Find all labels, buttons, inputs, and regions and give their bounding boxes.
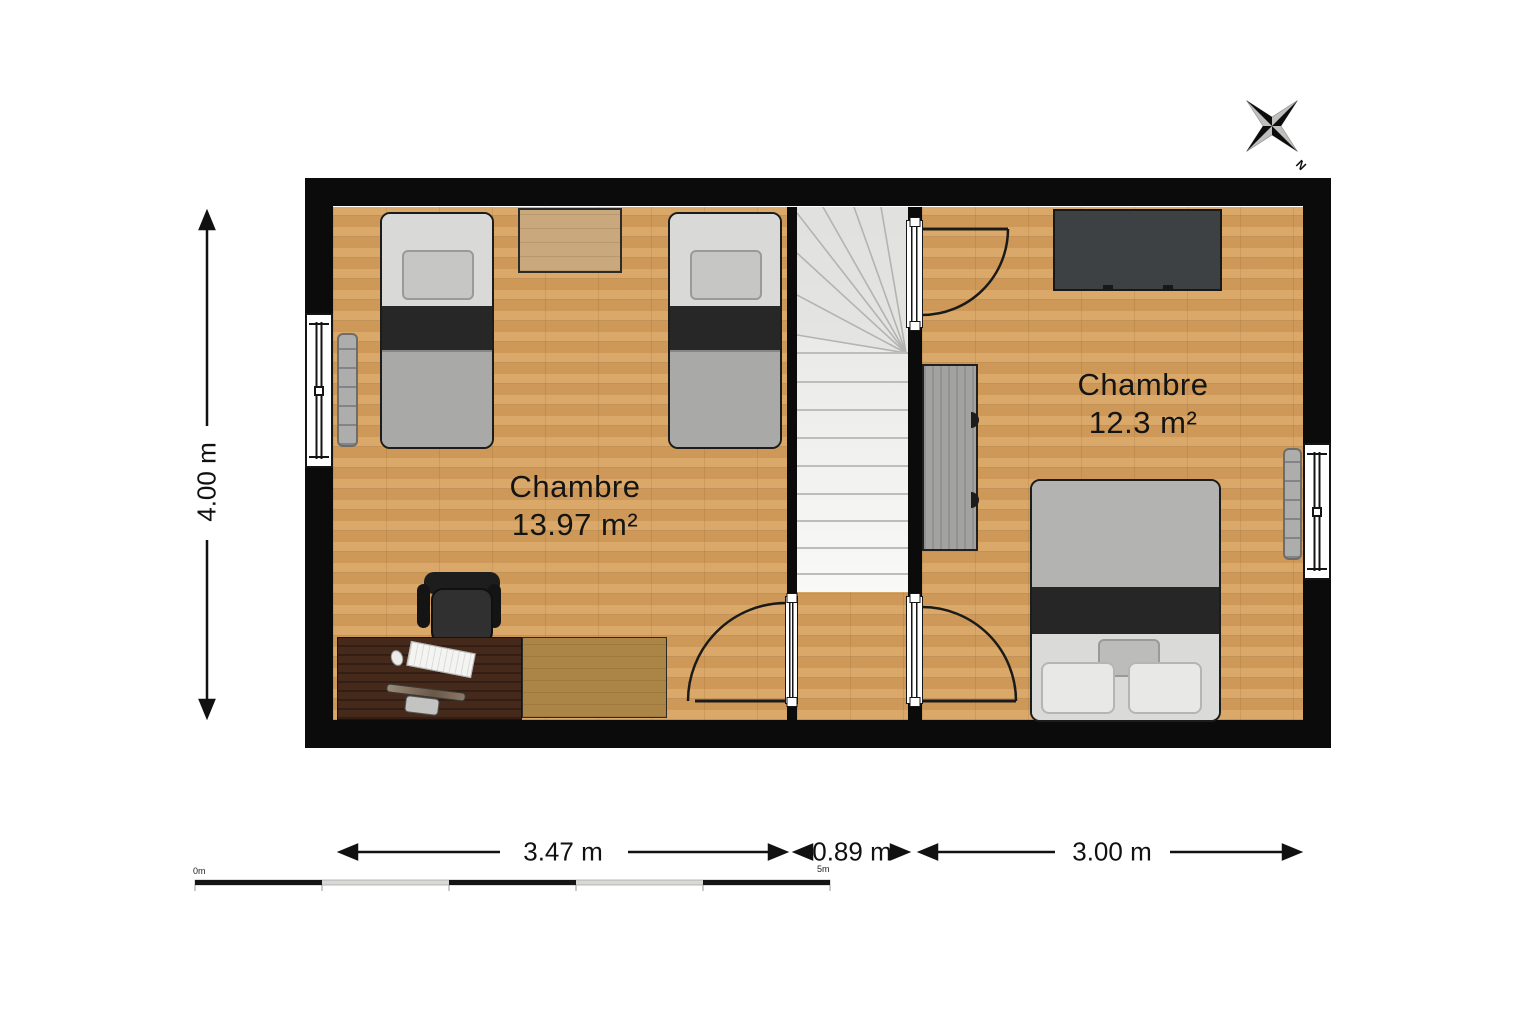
single-bed-1: [380, 212, 494, 449]
room-label-left: Chambre 13.97 m²: [450, 468, 700, 544]
window-left: [305, 313, 333, 468]
room-name: Chambre: [450, 468, 700, 506]
dimension-room-right-width: 3.00 m: [1072, 837, 1152, 868]
scale-start-label: 0m: [193, 866, 206, 876]
window-handle: [1312, 507, 1322, 517]
window-cap: [1307, 568, 1327, 570]
bed-band: [1032, 587, 1219, 634]
window-cap: [309, 456, 329, 458]
bed-blanket: [670, 350, 780, 447]
side-table: [518, 208, 622, 273]
dimension-room-left-width: 3.47 m: [523, 837, 603, 868]
single-bed-2: [668, 212, 782, 449]
doorframe-left-room: [785, 596, 798, 704]
office-chair-arm-left: [417, 584, 430, 628]
doorframe-cap: [909, 217, 920, 227]
scale-end-label: 5m: [817, 864, 830, 874]
wardrobe-handle: [1163, 285, 1173, 290]
scale-bar: [195, 880, 830, 891]
room-area: 12.3 m²: [1018, 404, 1268, 442]
doorframe-cap: [909, 697, 920, 707]
dresser-knob: [971, 412, 979, 428]
double-bed: [1030, 479, 1221, 722]
radiator-right: [1283, 448, 1302, 560]
radiator-left: [337, 333, 358, 447]
compass-north-label: N: [1293, 157, 1309, 173]
bed-blanket: [1032, 481, 1219, 587]
doorframe-cap: [909, 593, 920, 603]
room-name: Chambre: [1018, 366, 1268, 404]
doorframe-right-room-top: [906, 220, 923, 328]
bed-pillow: [1128, 662, 1202, 714]
dimension-plan-height: 4.00 m: [192, 442, 223, 522]
office-chair-seat: [431, 588, 493, 644]
bed-band: [382, 306, 492, 350]
doorframe-cap: [786, 697, 797, 707]
dresser-knob: [971, 492, 979, 508]
dresser-desk: [922, 364, 978, 551]
doorframe-right-room-bottom: [906, 596, 923, 704]
floor-plan-page: Chambre 13.97 m² Chambre 12.3 m²: [0, 0, 1536, 1021]
bed-pillow: [1041, 662, 1115, 714]
compass-icon: N: [1232, 86, 1322, 176]
table-light: [522, 637, 667, 718]
bed-pillow: [690, 250, 762, 300]
wardrobe-handle: [1103, 285, 1113, 290]
doorframe-cap: [909, 321, 920, 331]
window-right: [1303, 443, 1331, 580]
bed-pillow: [402, 250, 474, 300]
bed-blanket: [382, 350, 492, 447]
dimension-hall-width: 0.89 m: [812, 837, 892, 868]
room-label-right: Chambre 12.3 m²: [1018, 366, 1268, 442]
window-handle: [314, 386, 324, 396]
doorframe-cap: [786, 593, 797, 603]
wardrobe: [1053, 209, 1222, 291]
room-area: 13.97 m²: [450, 506, 700, 544]
bed-band: [670, 306, 780, 350]
